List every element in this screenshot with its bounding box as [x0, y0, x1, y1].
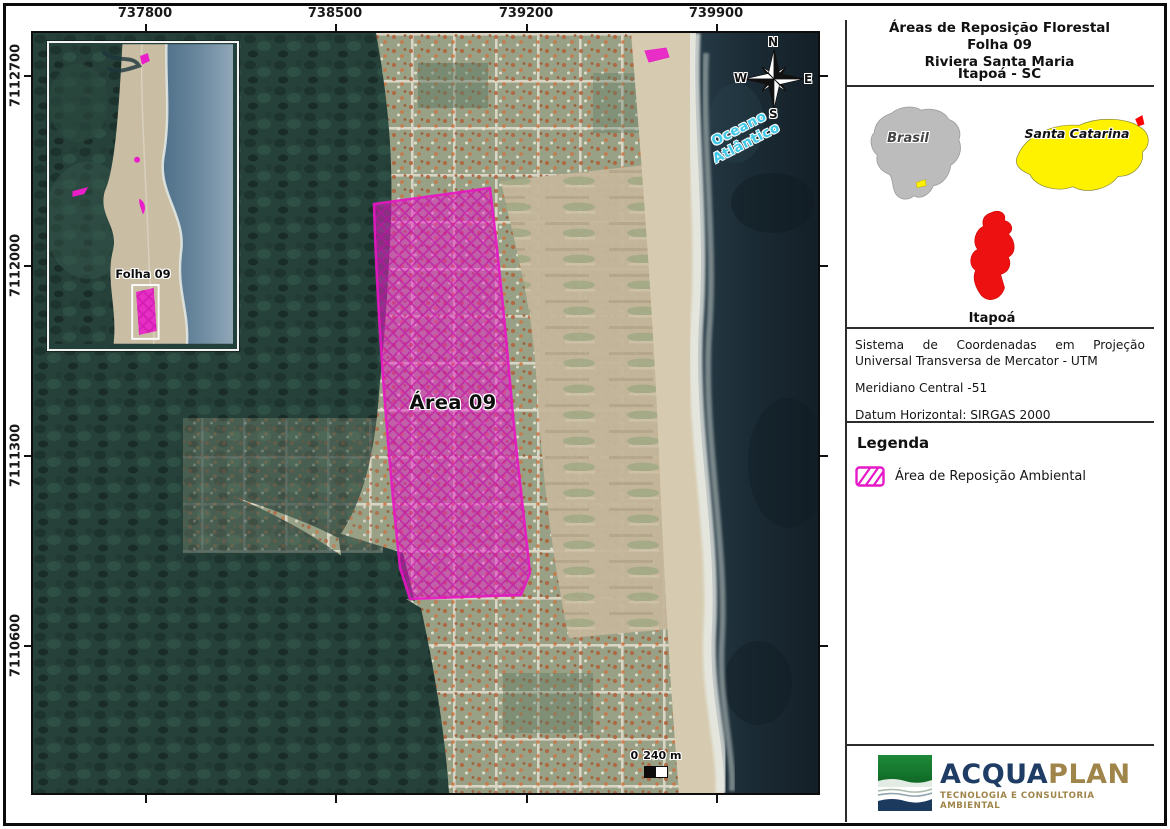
- inset-imagery: [49, 43, 233, 345]
- sheet-subtitle: Itapoá - SC: [845, 66, 1154, 82]
- datum-text: Datum Horizontal: SIRGAS 2000: [855, 408, 1145, 424]
- reposition-area-swatch-icon: [855, 466, 885, 487]
- y-coordinate-label: 7112000: [9, 224, 24, 308]
- legend-item: Área de Reposição Ambiental: [855, 466, 1154, 487]
- scale-bar-blocks: [644, 766, 668, 778]
- map-sheet: Área 09 Oceano Atlântico: [0, 0, 1170, 829]
- compass-star-icon: [742, 47, 806, 111]
- y-coordinate-label: 7112700: [9, 34, 24, 118]
- legend-title: Legenda: [857, 434, 1154, 452]
- y-coordinate-label: 7111300: [9, 414, 24, 498]
- projection-system-text: Sistema de Coordenadas em Projeção Unive…: [855, 338, 1145, 370]
- locator-maps: Brasil Santa Catarina Itapoá: [845, 89, 1154, 329]
- legend-item-label: Área de Reposição Ambiental: [895, 469, 1086, 484]
- itapoa-label: Itapoá: [953, 311, 1031, 326]
- central-meridian-text: Meridiano Central -51: [855, 381, 1145, 397]
- logo-block: ACQUAPLAN TECNOLOGIA E CONSULTORIA AMBIE…: [845, 748, 1154, 822]
- compass-south-label: S: [769, 107, 778, 121]
- compass-east-label: E: [804, 72, 812, 86]
- inset-map: Folha 09: [47, 41, 239, 351]
- title-block: Áreas de Reposição Florestal Folha 09 Ri…: [845, 7, 1154, 87]
- sheet-title-line1: Áreas de Reposição Florestal: [845, 20, 1154, 37]
- logo-acqua-text: ACQUA: [940, 759, 1048, 790]
- brazil-label: Brasil: [873, 131, 943, 146]
- info-panel: Áreas de Reposição Florestal Folha 09 Ri…: [845, 7, 1158, 822]
- projection-info: Sistema de Coordenadas em Projeção Unive…: [845, 331, 1154, 423]
- acquaplan-logo-icon: [878, 755, 932, 811]
- santa-catarina-label: Santa Catarina: [1007, 126, 1147, 141]
- brazil-map-icon: [863, 101, 965, 203]
- sheet-title-line2: Folha 09: [845, 37, 1154, 54]
- logo-tagline: TECNOLOGIA E CONSULTORIA AMBIENTAL: [940, 791, 1150, 811]
- santa-catarina-map-icon: [1011, 111, 1151, 201]
- area-09-label: Área 09: [393, 391, 513, 414]
- itapoa-map-icon: [955, 207, 1030, 311]
- compass-north-label: N: [768, 35, 778, 49]
- compass-rose-icon: N S W E: [734, 35, 814, 123]
- logo-plan-text: PLAN: [1048, 759, 1131, 790]
- scale-bar: 0240 m: [621, 749, 691, 778]
- x-coordinate-label: 739200: [484, 6, 568, 21]
- legend: Legenda Área de Reposição Ambiental: [845, 425, 1154, 746]
- y-coordinate-label: 7110600: [9, 604, 24, 688]
- main-map: Área 09 Oceano Atlântico: [31, 31, 820, 795]
- folha-09-label: Folha 09: [49, 267, 237, 281]
- x-coordinate-label: 739900: [674, 6, 758, 21]
- x-coordinate-label: 738500: [293, 6, 377, 21]
- x-coordinate-label: 737800: [103, 6, 187, 21]
- compass-west-label: W: [734, 71, 747, 85]
- scale-zero-label: 0: [631, 749, 639, 762]
- scale-distance-label: 240 m: [643, 749, 681, 762]
